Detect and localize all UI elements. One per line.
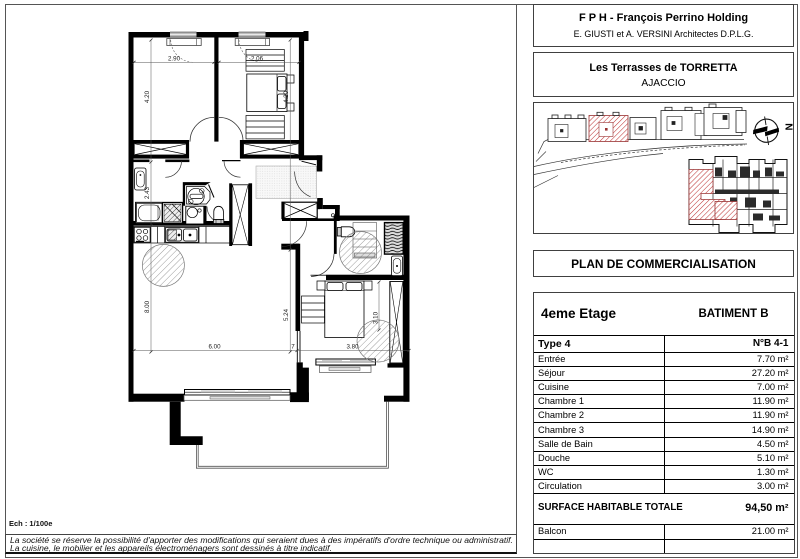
svg-text:N: N bbox=[783, 123, 794, 130]
svg-text:7: 7 bbox=[291, 344, 295, 351]
svg-text:3.80: 3.80 bbox=[346, 344, 359, 351]
svg-text:4.20: 4.20 bbox=[144, 90, 151, 103]
svg-text:2.43: 2.43 bbox=[144, 186, 151, 199]
svg-text:2.90: 2.90 bbox=[168, 56, 181, 63]
svg-text:2.06: 2.06 bbox=[251, 56, 264, 63]
svg-text:3.10: 3.10 bbox=[372, 311, 379, 324]
svg-text:5.24: 5.24 bbox=[283, 308, 290, 321]
svg-text:8.00: 8.00 bbox=[144, 300, 151, 313]
svg-text:6.00: 6.00 bbox=[208, 344, 221, 351]
svg-text:4.20: 4.20 bbox=[283, 90, 290, 103]
